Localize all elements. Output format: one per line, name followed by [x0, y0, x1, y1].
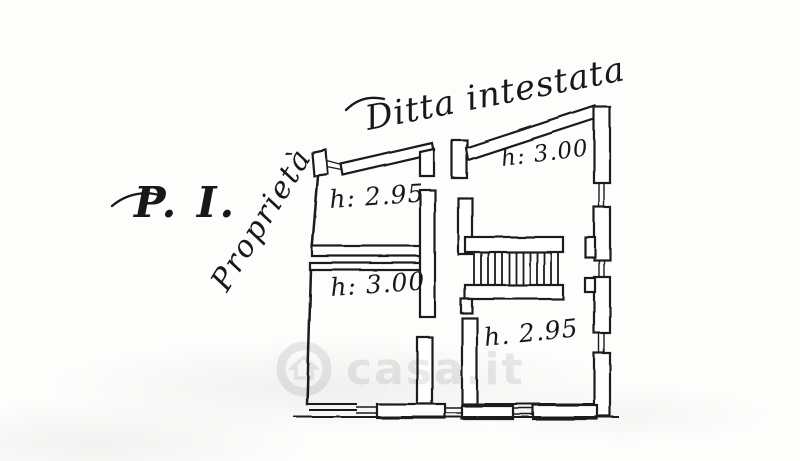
floor-level-label: P. I.	[133, 178, 237, 227]
right-wall-segment-2	[594, 207, 610, 260]
right-wall-window-1	[599, 183, 604, 207]
right-wall-pier-notch-1	[585, 237, 595, 257]
partition-wall-upper-band	[312, 246, 433, 256]
top-wall-left-return	[420, 149, 434, 176]
height-label-lower-left: h: 3.00	[329, 266, 426, 302]
right-wall-segment-1	[594, 107, 610, 183]
right-wall-window-2	[599, 260, 604, 277]
right-wall-window-3	[599, 333, 604, 353]
interior-wall-middle-upper	[420, 190, 435, 317]
bottom-window-3	[513, 408, 533, 414]
staircase-newel	[461, 299, 472, 313]
staircase-treads	[474, 253, 558, 286]
height-label-upper-left: h: 2.95	[328, 178, 425, 214]
bottom-wall-left-edge	[307, 404, 357, 410]
bottom-window-1	[356, 407, 378, 413]
right-room-corner-wall	[452, 140, 467, 178]
handwritten-annotations: P. I. Proprietà Ditta intestata h: 2.95 …	[112, 49, 628, 352]
right-wall-pier-notch-2	[585, 278, 595, 292]
floor-plan-canvas: P. I. Proprietà Ditta intestata h: 2.95 …	[0, 0, 800, 461]
left-exterior-wall-upper	[312, 176, 318, 249]
entrance-door-lines	[327, 161, 342, 170]
bottom-wall-pier-1	[377, 404, 445, 418]
house-in-circle-icon	[292, 357, 316, 378]
company-top-label: Ditta intestata	[361, 49, 628, 139]
staircase-bottom-stringer	[465, 285, 563, 299]
scanned-floor-plan-page: P. I. Proprietà Ditta intestata h: 2.95 …	[0, 0, 800, 461]
watermark-ring	[281, 346, 327, 392]
watermark-text: casa.it	[346, 344, 524, 395]
bottom-window-2	[445, 408, 462, 413]
right-wall-segment-3	[594, 277, 610, 333]
casa-it-watermark: casa.it	[281, 344, 524, 395]
left-exterior-wall-lower	[307, 270, 311, 404]
staircase-top-stringer	[465, 237, 563, 252]
